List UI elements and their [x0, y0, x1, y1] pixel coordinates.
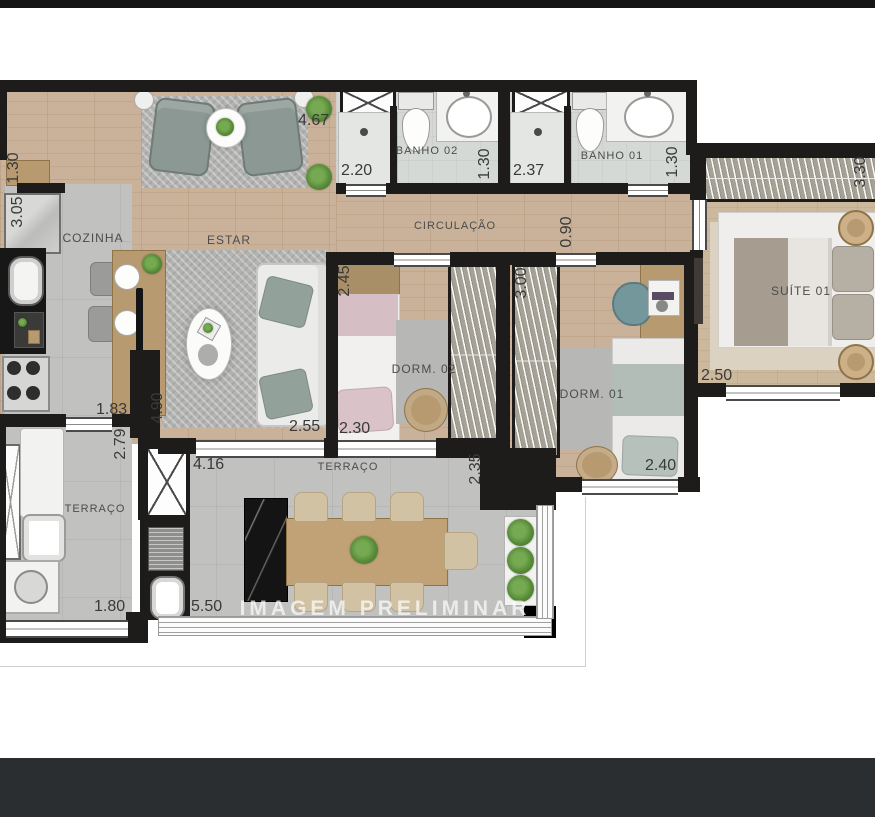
dim-estar-topo: 4.67 — [298, 112, 329, 130]
wall — [564, 106, 571, 184]
dining-chair — [294, 492, 328, 522]
wall-banho-divider — [498, 80, 510, 194]
suite-door-sill — [692, 200, 707, 250]
coffee-table-decor — [198, 344, 218, 366]
laundry-counter — [20, 428, 64, 518]
banho02-door-sill — [346, 184, 386, 197]
room-label-dorm02: DORM. 02 — [392, 362, 457, 376]
dim-banho01-larg: 2.37 — [513, 162, 544, 180]
room-label-dorm01: DORM. 01 — [560, 387, 625, 401]
room-label-banho01: BANHO 01 — [581, 150, 643, 162]
suite-window — [726, 385, 840, 401]
wall — [840, 383, 875, 397]
dim-cozinha-larg: 1.83 — [96, 401, 127, 419]
suite-pillow — [832, 294, 874, 340]
dim-banho02-larg: 2.20 — [341, 162, 372, 180]
dim-terraco-larg: 4.16 — [193, 456, 224, 474]
plant — [306, 164, 332, 190]
room-label-estar: ESTAR — [207, 233, 251, 247]
dim-estar-larg: 2.55 — [289, 418, 320, 436]
plant — [216, 118, 234, 136]
banho01-drain — [534, 128, 542, 136]
floor-lamp — [134, 90, 154, 110]
burner — [26, 361, 40, 375]
wall — [686, 80, 697, 155]
burner — [26, 386, 40, 400]
wall — [386, 183, 500, 194]
terrace-railing-right — [536, 505, 554, 619]
bar-stool — [114, 264, 140, 290]
banho02-drain — [360, 128, 368, 136]
armchair — [236, 97, 305, 178]
wall — [506, 183, 628, 194]
dim-banho01-prof: 1.30 — [664, 142, 680, 182]
desk-chair — [612, 282, 652, 326]
dim-dorm02-prof: 2.45 — [336, 261, 352, 301]
dorm01-door-sill — [556, 253, 596, 267]
herb-pot — [18, 318, 27, 327]
dorm02-window — [338, 440, 436, 458]
suite-pillow — [832, 246, 874, 292]
plant — [203, 323, 213, 333]
dim-dorm01-larg: 2.40 — [645, 457, 676, 475]
table-centerpiece — [350, 536, 378, 564]
room-label-circulacao: CIRCULAÇÃO — [414, 220, 496, 232]
suite-nightstand — [838, 344, 874, 380]
dim-suite-larg: 2.50 — [701, 367, 732, 385]
dorm02-door-sill — [394, 253, 450, 267]
suite-door-leaf — [694, 258, 703, 324]
bottom-bar — [0, 758, 875, 817]
wall — [596, 252, 697, 265]
suite-wardrobe — [703, 155, 875, 202]
top-bar — [0, 0, 875, 8]
service-door-sill — [66, 417, 112, 432]
kitchen-sink — [8, 256, 44, 306]
room-label-suite01: SUÍTE 01 — [771, 284, 831, 298]
wall — [158, 438, 196, 454]
dorm01-window — [582, 479, 678, 495]
plant — [142, 254, 162, 274]
banho02-basin — [446, 96, 492, 138]
room-label-terraco-gourmet: TERRAÇO — [318, 461, 379, 473]
dim-cozinha-prof: 3.05 — [9, 192, 25, 232]
dim-dorm01-prof: 3.00 — [513, 263, 529, 303]
dim-dorm02-larg: 2.30 — [339, 420, 370, 438]
service-terrace-window — [6, 620, 128, 638]
dining-chair — [444, 532, 478, 570]
wall-suite-top — [688, 143, 875, 155]
room-label-terraco-servico: TERRAÇO — [65, 503, 126, 515]
dim-terraco-gourmet-larg: 5.50 — [191, 598, 222, 616]
floor-plan-image: COZINHA ESTAR CIRCULAÇÃO BANHO 02 BANHO … — [0, 0, 875, 817]
laundry-sink — [22, 514, 66, 562]
dim-entrada: 1.30 — [5, 148, 21, 188]
armchair — [148, 97, 217, 178]
slab-ghost-line — [585, 497, 586, 667]
dining-chair — [390, 492, 424, 522]
desk-decor — [656, 300, 668, 312]
grill — [148, 527, 184, 571]
dim-suite-armario: 3.30 — [852, 152, 868, 192]
watermark: IMAGEM PRELIMINAR — [240, 597, 531, 621]
suite-nightstand — [838, 210, 874, 246]
wall — [336, 183, 346, 194]
circulacao-floor — [336, 188, 697, 258]
burner — [7, 386, 21, 400]
marble-counter — [244, 498, 288, 602]
utensil — [28, 330, 40, 344]
laptop-screen — [652, 292, 674, 300]
wall-left-lower — [0, 427, 6, 639]
shaft-xbox-terraco — [145, 446, 189, 518]
wall — [690, 155, 703, 200]
wall-top — [0, 80, 697, 92]
dim-terraco-servico-larg: 1.80 — [94, 598, 125, 616]
wall — [324, 438, 338, 458]
room-label-cozinha: COZINHA — [63, 231, 124, 245]
dim-terraco-servico-prof: 2.79 — [112, 424, 128, 464]
dim-banho02-prof: 1.30 — [476, 144, 492, 184]
dim-estar-prof: 4.90 — [149, 388, 165, 428]
wall — [0, 414, 66, 427]
planter-plant — [507, 519, 534, 546]
dining-chair — [342, 492, 376, 522]
washer-drum — [14, 570, 48, 604]
banho01-basin — [624, 96, 674, 138]
slab-ghost-line — [0, 666, 586, 667]
dorm02-pouf — [404, 388, 448, 432]
burner — [7, 361, 21, 375]
wall — [690, 383, 726, 397]
planter-plant — [507, 547, 534, 574]
dim-circulacao-larg: 0.90 — [558, 212, 574, 252]
grill-sink — [150, 576, 185, 620]
wall — [556, 477, 582, 492]
room-label-banho02: BANHO 02 — [396, 145, 458, 157]
banho01-door-sill — [628, 184, 668, 197]
dim-terraco-prof: 2.35 — [467, 449, 483, 489]
